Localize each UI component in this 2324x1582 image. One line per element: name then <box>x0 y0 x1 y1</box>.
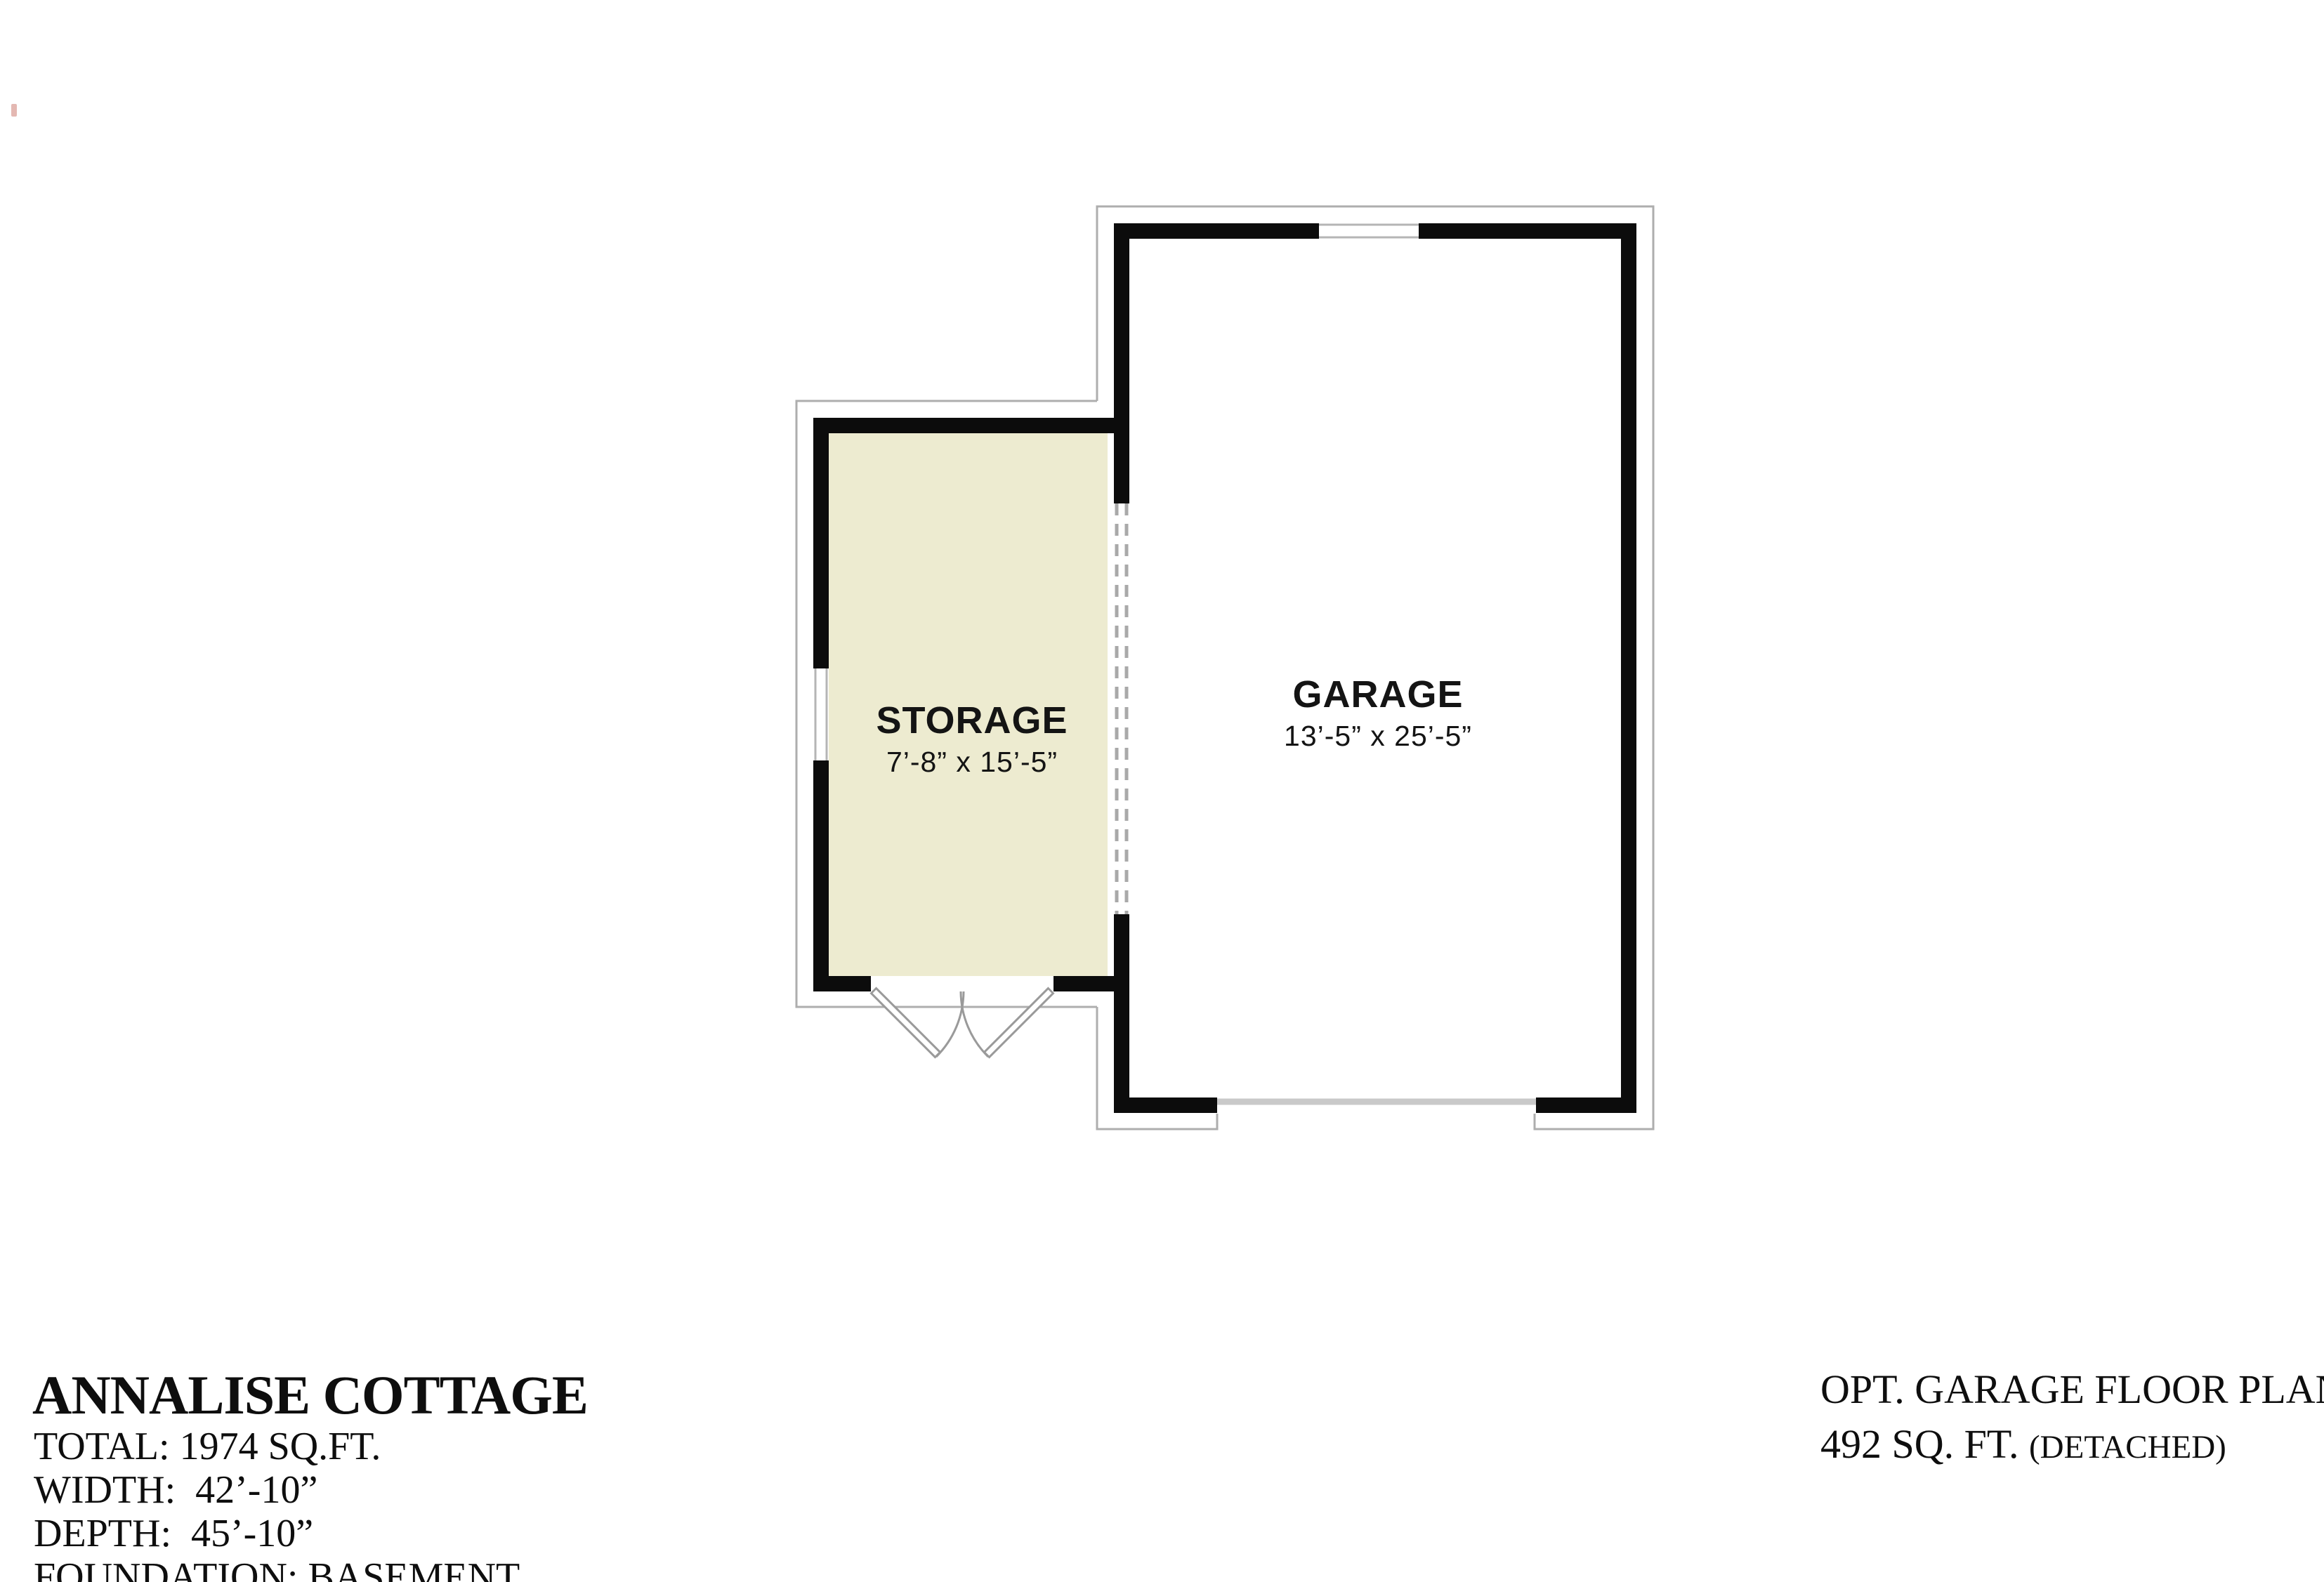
plan-note-area-suffix: (DETACHED) <box>2029 1429 2226 1465</box>
door-swing-arc <box>961 991 988 1057</box>
plan-note-title: OPT. GARAGE FLOOR PLAN <box>1820 1369 2324 1410</box>
plan-note-area: 492 SQ. FT. (DETACHED) <box>1820 1424 2226 1465</box>
storage-wall-left-lower-segment <box>813 760 829 991</box>
garage-wall-left-upper-segment <box>1114 223 1129 503</box>
garage-wall-top-left-segment <box>1114 223 1319 239</box>
door-swing-arc <box>936 991 964 1057</box>
door-leaf <box>987 991 1050 1054</box>
garage-wall-left-lower-segment <box>1114 914 1129 1113</box>
storage-wall-bottom-left-stub <box>813 976 871 991</box>
room-dimensions-garage: 13’-5” x 25’-5” <box>1284 720 1472 753</box>
spec-depth: DEPTH: 45’-10” <box>34 1514 313 1553</box>
spec-total: TOTAL: 1974 SQ.FT. <box>34 1427 381 1466</box>
spec-foundation: FOUNDATION: BASEMENT <box>34 1557 520 1582</box>
room-dimensions-storage: 7’-8” x 15’-5” <box>886 746 1058 779</box>
plan-note-area-value: 492 SQ. FT. <box>1820 1421 2029 1467</box>
garage-wall-top-right-segment <box>1419 223 1636 239</box>
plan-name: ANNALISE COTTAGE <box>32 1368 588 1423</box>
building-outline <box>1097 206 1653 1129</box>
plan-note-block: OPT. GARAGE FLOOR PLAN 492 SQ. FT. (DETA… <box>1820 1369 2324 1410</box>
garage-wall-right <box>1621 223 1636 1113</box>
storage-wall-top <box>813 418 1129 433</box>
title-block: ANNALISE COTTAGE TOTAL: 1974 SQ.FT. WIDT… <box>32 1368 588 1423</box>
storage-wall-bottom-right-stub <box>1053 976 1114 991</box>
storage-wall-left-upper-segment <box>813 418 829 668</box>
floor-plan-page: STORAGE 7’-8” x 15’-5” GARAGE 13’-5” x 2… <box>0 0 2324 1582</box>
room-label-storage: STORAGE <box>876 699 1068 742</box>
garage-wall-bottom-right-stub <box>1536 1097 1636 1113</box>
spec-width: WIDTH: 42’-10” <box>34 1470 317 1510</box>
door-leaf <box>874 991 937 1054</box>
scan-artifact <box>11 104 17 117</box>
garage-wall-bottom-left-stub <box>1114 1097 1217 1113</box>
room-label-garage: GARAGE <box>1292 673 1463 716</box>
